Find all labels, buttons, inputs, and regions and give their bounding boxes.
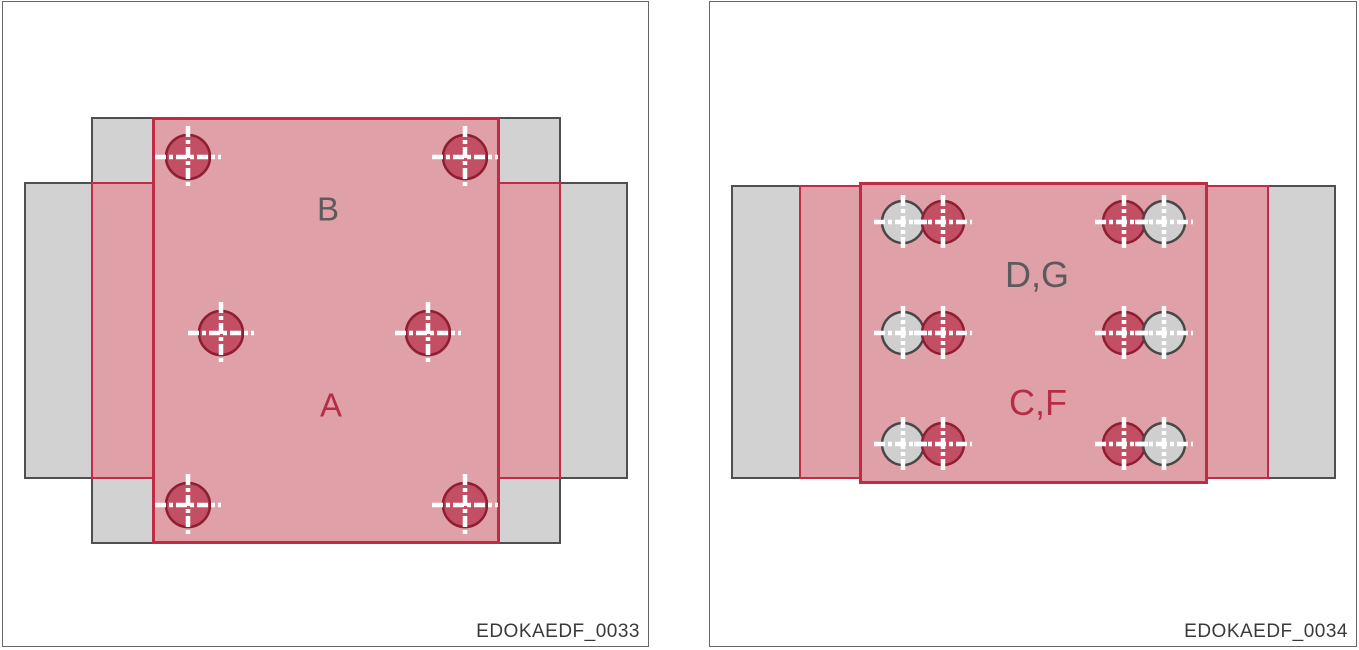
figure-caption: EDOKAEDF_0033 [476,621,640,643]
figure-caption: EDOKAEDF_0034 [1184,621,1348,643]
position-label-cf: C,F [1009,385,1067,421]
figure-panel-0033: B A EDOKAEDF_0033 [2,1,649,647]
overlay-plate-shape [152,117,500,544]
figure-panel-0034: D,G C,F EDOKAEDF_0034 [709,1,1357,647]
overlay-plate-shape [859,182,1208,484]
position-label-a: A [320,389,342,422]
position-label-dg: D,G [1005,257,1069,293]
position-label-b: B [317,193,339,226]
figure-canvas: B A EDOKAEDF_0033 D,G C,F EDOKAEDF_0034 [0,0,1359,650]
